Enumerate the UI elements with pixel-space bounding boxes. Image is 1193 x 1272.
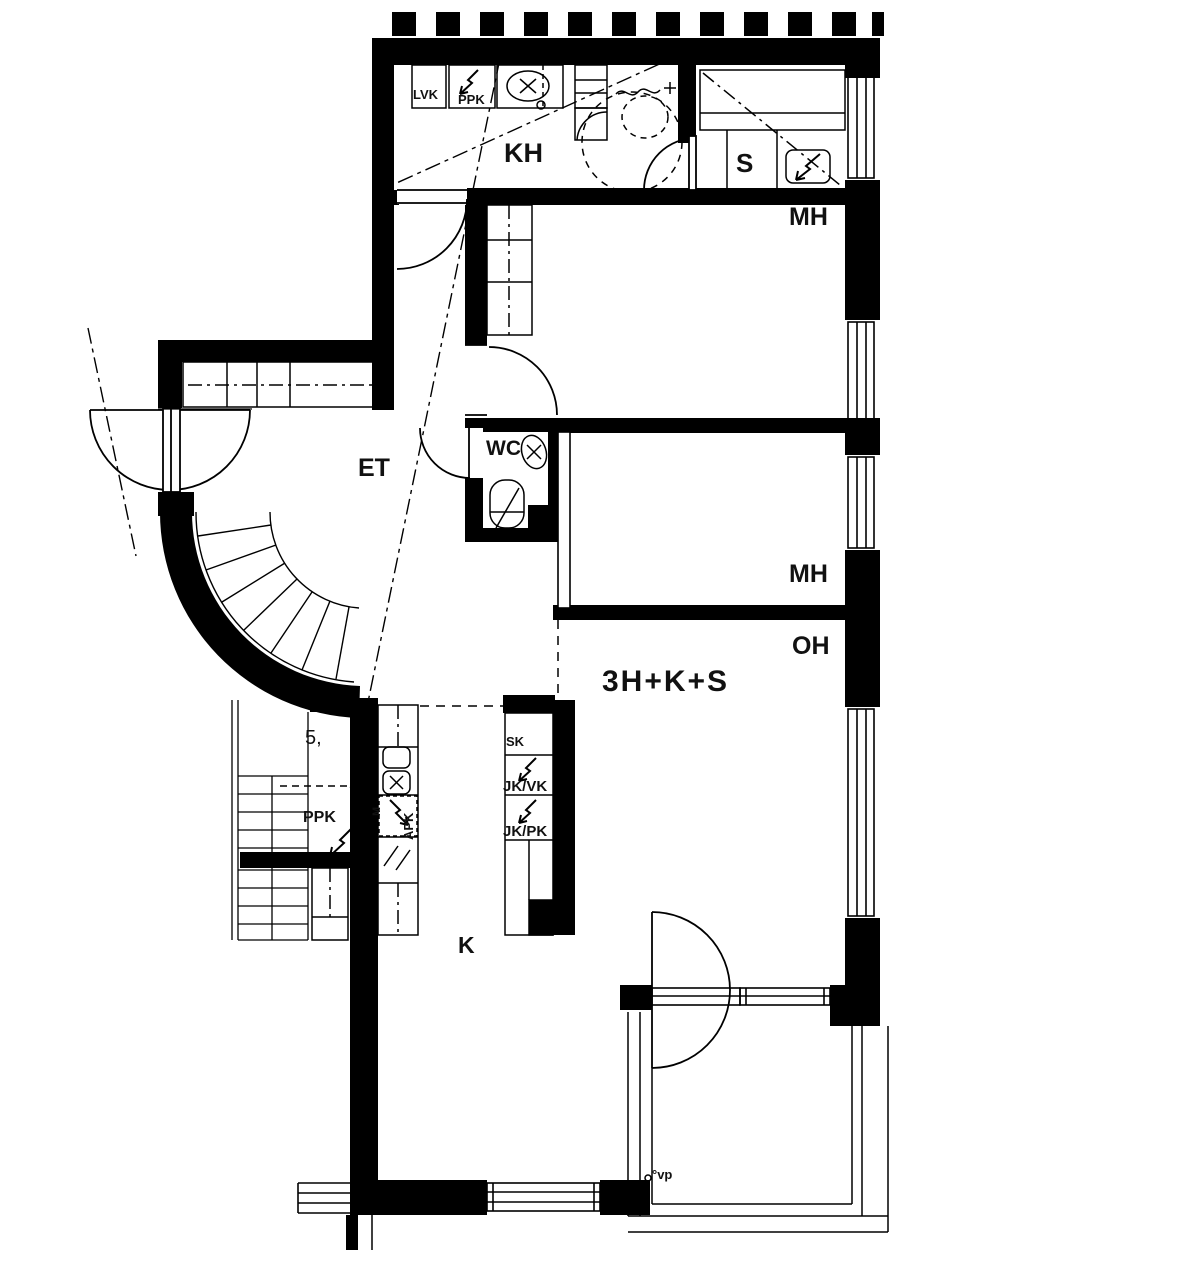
neighbor-wall-dashes: [392, 12, 884, 36]
room-label-kh: KH: [504, 140, 543, 167]
room-label-sauna: S: [736, 150, 753, 176]
straight-stair-flight: [232, 700, 308, 940]
et-closets: [158, 362, 377, 409]
sauna-fixtures: [700, 70, 845, 188]
room-label-kitchen: K: [458, 934, 475, 957]
mh-middle-partition: [558, 432, 570, 608]
window-k-left: [298, 1183, 350, 1213]
open-boundaries: [420, 620, 558, 706]
electric-icon-jk-pk: [519, 800, 536, 823]
fixture-label-jk-vk: JK/VK: [503, 779, 547, 794]
sauna-benches: [700, 70, 845, 130]
fixture-label-ppk-utility: PPK: [303, 810, 336, 826]
fixture-label-m: M: [372, 807, 383, 816]
fixture-label-lvk: LVK: [413, 88, 438, 101]
floor-plan-page: KH S MH MH OH 3H+K+S ET WC K LVK PPK PPK…: [0, 0, 1193, 1272]
turning-circle: [582, 92, 682, 192]
wc-toilet-icon: [490, 480, 524, 528]
sauna-door: [644, 136, 696, 190]
wc-door: [420, 428, 483, 478]
window-mh-middle: [848, 457, 874, 548]
window-sauna: [848, 77, 874, 178]
mh-top-wardrobe: [487, 205, 532, 335]
window-mh-top: [848, 322, 874, 426]
window-balcony: [740, 988, 830, 1005]
window-oh-bottom: [487, 1183, 600, 1211]
tall-cabinet: [575, 65, 607, 108]
room-label-mh-middle: MH: [789, 562, 828, 587]
room-label-mh-top: MH: [789, 205, 828, 230]
electric-icon-ppk-utility: [330, 828, 352, 856]
fixture-label-sk: SK: [506, 735, 524, 748]
fixture-label-jk-pk: JK/PK: [503, 824, 547, 839]
fixture-label-ppk-bathroom: PPK: [458, 93, 485, 106]
fixture-label-apk: APK: [402, 813, 415, 840]
balcony: [628, 1008, 888, 1232]
bathroom-fixtures: [412, 65, 682, 192]
vp-label: °vp: [652, 1168, 672, 1181]
balcony-door-frame: [652, 988, 740, 1005]
sink-icon: [383, 747, 410, 794]
stove-icon: [384, 846, 410, 870]
room-label-wc: WC: [486, 438, 521, 459]
kh-door: [397, 189, 467, 269]
floor-plan-drawing: [0, 0, 1193, 1272]
window-oh: [848, 709, 874, 916]
electric-icon-ppk-bathroom: [460, 70, 478, 94]
room-label-et: ET: [358, 456, 390, 481]
partitions: [558, 432, 570, 608]
mh-top-door: [465, 345, 557, 415]
apartment-type-label: 3H+K+S: [602, 667, 729, 697]
room-label-oh: OH: [792, 634, 830, 659]
stair-mark-label: 5,: [305, 728, 322, 748]
walls: [158, 38, 880, 1250]
toilet-icon: [616, 82, 676, 138]
balcony-door: [652, 912, 730, 1068]
